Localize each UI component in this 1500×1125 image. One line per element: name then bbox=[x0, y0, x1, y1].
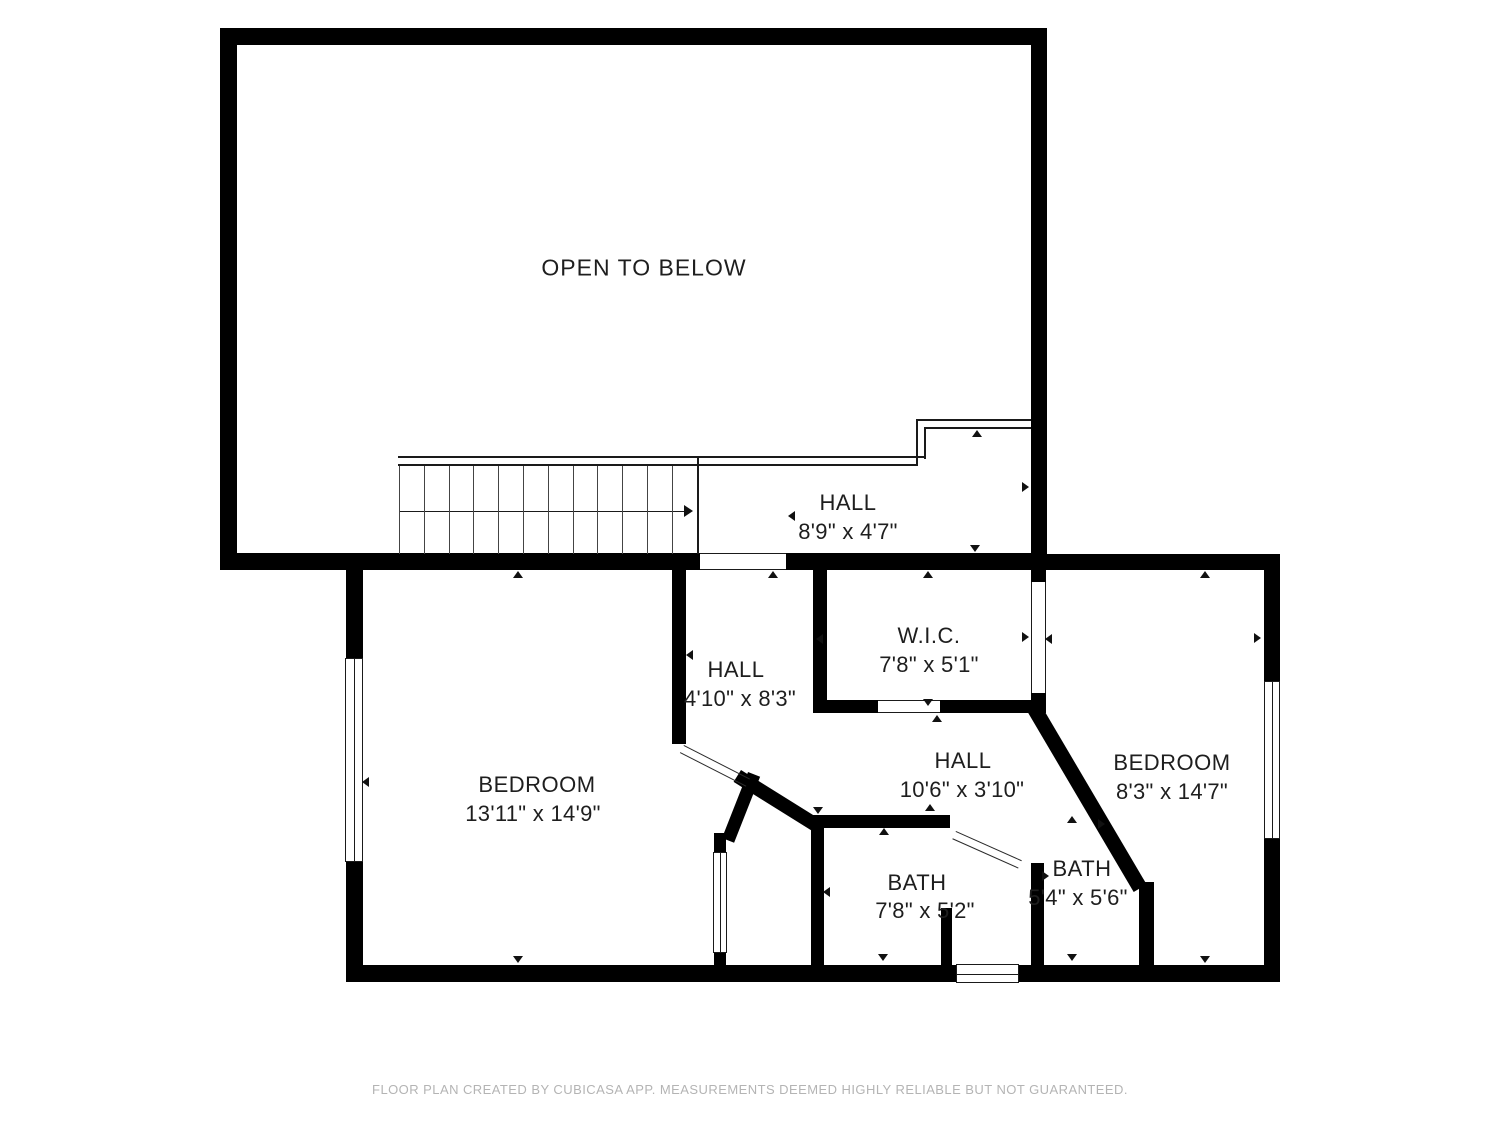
wall-segment bbox=[1264, 554, 1280, 683]
window-center-line bbox=[1272, 682, 1273, 838]
thin-line bbox=[924, 427, 1031, 429]
direction-marker bbox=[878, 954, 888, 961]
direction-marker bbox=[923, 699, 933, 706]
direction-marker bbox=[1042, 871, 1049, 881]
wall-segment bbox=[1139, 882, 1154, 982]
stairs-tread-line bbox=[498, 466, 499, 554]
thin-line bbox=[924, 427, 926, 459]
direction-marker bbox=[972, 430, 982, 437]
window-center-line bbox=[957, 974, 1018, 975]
direction-marker bbox=[925, 804, 935, 811]
stairs-tread-line bbox=[622, 466, 623, 554]
room-dims-bath-left: 7'8" x 5'2" bbox=[875, 898, 975, 924]
wall-segment bbox=[220, 28, 237, 570]
thin-line bbox=[399, 511, 689, 513]
direction-marker bbox=[686, 650, 693, 660]
wall-segment bbox=[786, 553, 1047, 570]
direction-marker bbox=[932, 715, 942, 722]
stairs-tread-line bbox=[473, 466, 474, 554]
room-label-wic: W.I.C. bbox=[898, 623, 961, 649]
room-label-hall-upper: HALL bbox=[819, 490, 876, 516]
thin-line bbox=[398, 456, 925, 458]
room-label-bedroom-left: BEDROOM bbox=[478, 772, 595, 798]
room-dims-wic: 7'8" x 5'1" bbox=[879, 652, 979, 678]
room-dims-bedroom-left: 13'11" x 14'9" bbox=[465, 801, 600, 827]
direction-marker bbox=[923, 571, 933, 578]
room-label-hall-lower: HALL bbox=[934, 748, 991, 774]
direction-marker bbox=[1022, 482, 1029, 492]
wall-segment bbox=[1031, 28, 1047, 570]
direction-marker bbox=[1200, 571, 1210, 578]
footer-disclaimer: FLOOR PLAN CREATED BY CUBICASA APP. MEAS… bbox=[0, 1082, 1500, 1097]
wall-segment bbox=[1047, 554, 1280, 570]
wall-segment bbox=[346, 554, 363, 660]
direction-marker bbox=[816, 634, 823, 644]
room-dims-bath-right: 5'4" x 5'6" bbox=[1028, 885, 1128, 911]
direction-marker bbox=[768, 571, 778, 578]
wall-segment bbox=[714, 951, 726, 982]
thin-line bbox=[700, 569, 786, 570]
wall-segment bbox=[1264, 837, 1280, 982]
thin-line bbox=[916, 419, 1031, 421]
direction-marker bbox=[1254, 633, 1261, 643]
room-label-open-to-below: OPEN TO BELOW bbox=[541, 255, 746, 282]
floor-plan: OPEN TO BELOWHALL8'9" x 4'7"HALL4'10" x … bbox=[0, 0, 1500, 1125]
thin-line bbox=[1031, 582, 1032, 693]
direction-marker bbox=[788, 511, 795, 521]
door-swing bbox=[680, 745, 750, 787]
direction-marker bbox=[813, 807, 823, 814]
room-dims-hall-lower: 10'6" x 3'10" bbox=[900, 777, 1025, 803]
room-dims-hall-center: 4'10" x 8'3" bbox=[684, 686, 796, 712]
wall-segment bbox=[1031, 570, 1046, 582]
wall-segment bbox=[672, 570, 686, 744]
stairs-tread-line bbox=[573, 466, 574, 554]
wall-segment bbox=[813, 700, 878, 713]
stairs-tread-line bbox=[449, 466, 450, 554]
thin-line bbox=[700, 553, 786, 554]
room-dims-bedroom-right: 8'3" x 14'7" bbox=[1116, 779, 1228, 805]
window-center-line bbox=[720, 853, 721, 952]
stairs-tread-line bbox=[672, 466, 673, 554]
window bbox=[1264, 681, 1280, 839]
direction-marker bbox=[513, 571, 523, 578]
stairs-tread-line bbox=[597, 466, 598, 554]
direction-marker bbox=[1022, 632, 1029, 642]
floor-plan-canvas: OPEN TO BELOWHALL8'9" x 4'7"HALL4'10" x … bbox=[0, 0, 1500, 1125]
direction-marker bbox=[879, 828, 889, 835]
direction-marker bbox=[1098, 819, 1105, 829]
direction-marker bbox=[1067, 816, 1077, 823]
direction-marker bbox=[684, 505, 693, 517]
thin-line bbox=[697, 456, 699, 554]
window bbox=[956, 964, 1019, 983]
direction-marker bbox=[1067, 954, 1077, 961]
room-label-bedroom-right: BEDROOM bbox=[1113, 750, 1230, 776]
thin-line bbox=[878, 712, 940, 713]
direction-marker bbox=[1200, 956, 1210, 963]
thin-line bbox=[398, 464, 917, 466]
room-label-hall-center: HALL bbox=[707, 657, 764, 683]
wall-segment bbox=[817, 815, 950, 828]
stairs-tread-line bbox=[548, 466, 549, 554]
room-label-bath-right: BATH bbox=[1052, 856, 1111, 882]
window-center-line bbox=[354, 659, 355, 861]
direction-marker bbox=[362, 777, 369, 787]
stairs-tread-line bbox=[399, 466, 400, 554]
wall-segment bbox=[346, 860, 363, 982]
room-dims-hall-upper: 8'9" x 4'7" bbox=[798, 519, 898, 545]
room-label-bath-left: BATH bbox=[887, 870, 946, 896]
window bbox=[713, 852, 727, 953]
stairs-tread-line bbox=[647, 466, 648, 554]
direction-marker bbox=[823, 887, 830, 897]
window bbox=[345, 658, 363, 862]
door-swing bbox=[952, 831, 1021, 869]
stairs-tread-line bbox=[523, 466, 524, 554]
wall-segment bbox=[220, 28, 1047, 45]
direction-marker bbox=[1045, 634, 1052, 644]
stairs-tread-line bbox=[424, 466, 425, 554]
direction-marker bbox=[513, 956, 523, 963]
wall-segment bbox=[220, 553, 700, 570]
direction-marker bbox=[970, 545, 980, 552]
thin-line bbox=[916, 419, 918, 466]
